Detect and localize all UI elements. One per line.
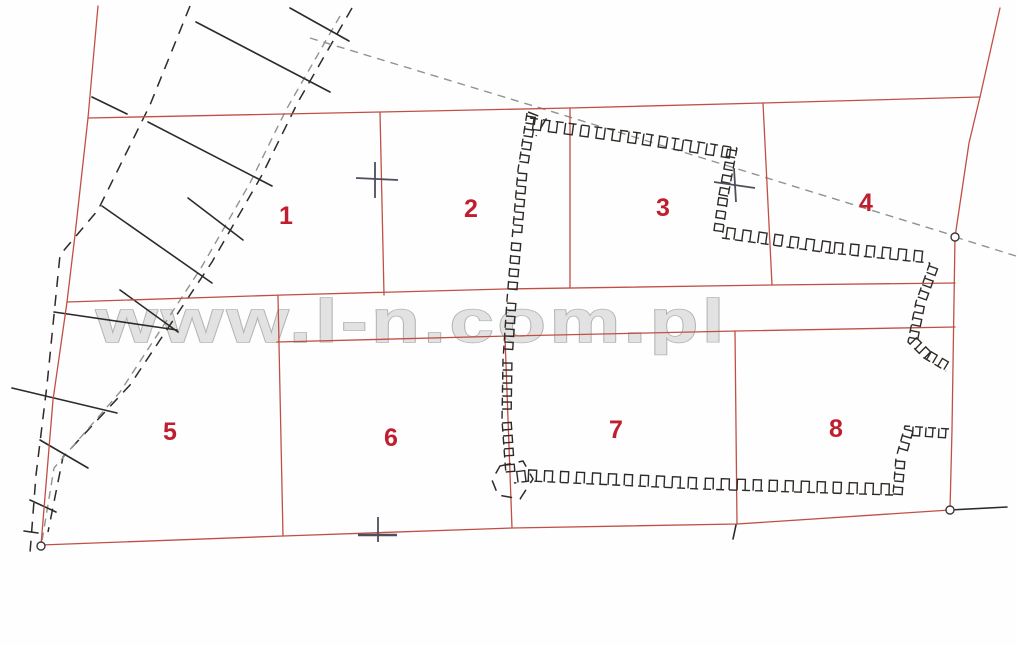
parcel-label-6: 6: [384, 424, 398, 452]
outer-boundary-bottom: [41, 510, 950, 545]
band-right-dashed-edge: [48, 8, 352, 532]
survey-cross: [358, 517, 397, 542]
survey-cross: [714, 168, 755, 202]
boundary-6-7: [505, 337, 512, 528]
parcel-label-5: 5: [163, 418, 177, 446]
cadastral-map: www.l-n.com.pl: [0, 0, 1017, 646]
outer-boundary-left: [41, 6, 98, 545]
boundary-1-2: [380, 112, 384, 295]
boundary-point: [951, 233, 959, 241]
parcel-label-3: 3: [656, 194, 670, 222]
parcel-label-8: 8: [829, 415, 843, 443]
parcel-label-2: 2: [464, 195, 478, 223]
parcel-label-7: 7: [609, 416, 623, 444]
tick-below-boundary-7-8: [733, 525, 736, 539]
misc-marks: [24, 507, 1007, 539]
band-center-dashed-line: [42, 16, 340, 541]
boundary-point: [37, 542, 45, 550]
survey-cross: [356, 162, 398, 198]
band-hatch-ticks: [12, 8, 349, 512]
boundary-3-4: [763, 103, 772, 285]
map-canvas: www.l-n.com.pl: [0, 0, 1017, 646]
fence-knot-loop: [492, 461, 533, 499]
boundary-point: [946, 506, 954, 514]
black-line-right-of-corner: [950, 507, 1007, 510]
outer-boundary-right: [950, 8, 1000, 510]
parcel-label-4: 4: [859, 189, 873, 217]
tick-near-bottom-left-point: [24, 531, 38, 533]
embankment-band: [12, 6, 352, 553]
parcel-boundaries: [41, 6, 1000, 545]
boundary-7-8: [735, 331, 737, 524]
parcel-label-1: 1: [279, 202, 293, 230]
boundary-points: [37, 233, 959, 550]
